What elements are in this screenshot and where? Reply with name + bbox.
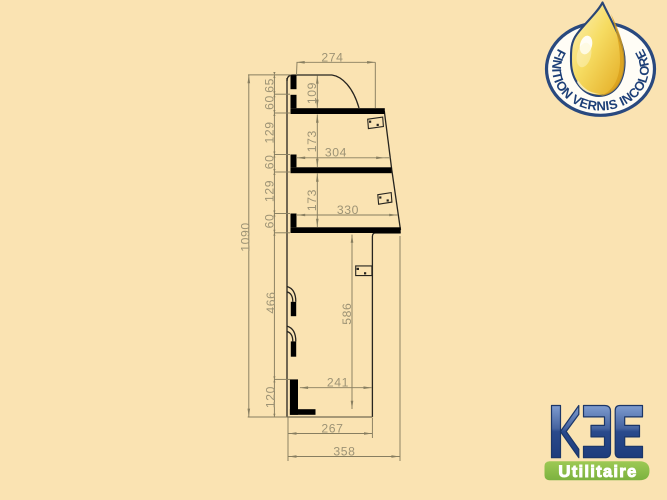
svg-text:60: 60 [263, 95, 277, 110]
svg-text:358: 358 [333, 444, 355, 458]
svg-text:65: 65 [263, 78, 277, 93]
svg-text:274: 274 [321, 50, 343, 64]
svg-text:586: 586 [340, 303, 354, 325]
svg-text:304: 304 [325, 146, 347, 160]
svg-text:1090: 1090 [238, 222, 252, 252]
svg-text:466: 466 [264, 291, 278, 313]
svg-text:173: 173 [305, 189, 319, 211]
svg-text:173: 173 [305, 130, 319, 152]
svg-text:330: 330 [337, 203, 359, 217]
svg-text:60: 60 [263, 154, 277, 169]
svg-text:60: 60 [263, 214, 277, 229]
svg-text:129: 129 [263, 180, 277, 202]
svg-text:241: 241 [327, 375, 349, 389]
svg-text:Utilitaire: Utilitaire [558, 462, 637, 481]
svg-text:120: 120 [263, 386, 277, 408]
svg-text:109: 109 [305, 82, 319, 104]
svg-text:129: 129 [263, 121, 277, 143]
svg-text:267: 267 [321, 421, 343, 435]
